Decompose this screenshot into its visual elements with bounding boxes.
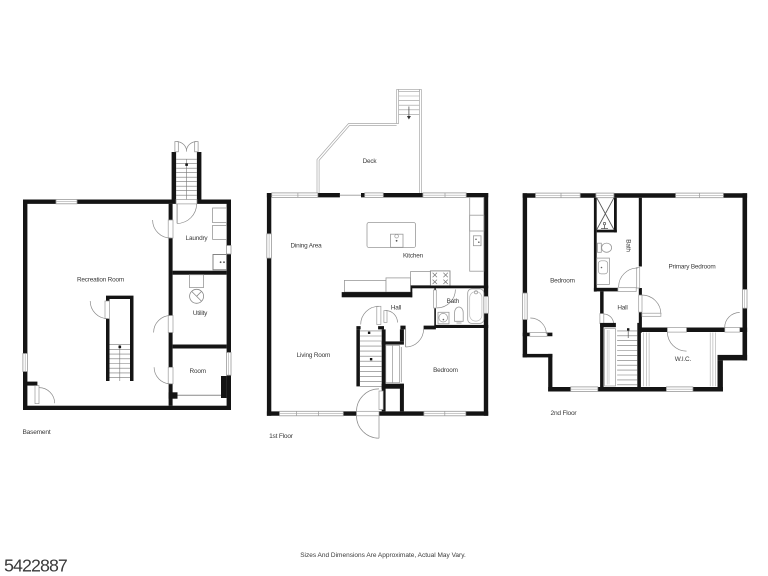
svg-text:Deck: Deck (363, 158, 378, 165)
svg-text:Dining Area: Dining Area (290, 242, 322, 249)
svg-text:Primary Bedroom: Primary Bedroom (668, 263, 715, 270)
svg-text:Hall: Hall (617, 305, 627, 312)
svg-text:Living Room: Living Room (297, 352, 331, 359)
svg-text:2nd Floor: 2nd Floor (551, 410, 578, 417)
svg-text:Basement: Basement (23, 429, 51, 436)
svg-text:W.I.C.: W.I.C. (675, 356, 692, 363)
svg-text:Sizes And Dimensions Are Appro: Sizes And Dimensions Are Approximate, Ac… (300, 552, 466, 559)
svg-text:Utility: Utility (193, 310, 208, 317)
svg-text:Bedroom: Bedroom (550, 278, 575, 285)
svg-text:1st Floor: 1st Floor (269, 433, 294, 440)
svg-text:Hall: Hall (391, 304, 401, 311)
svg-text:Recreation Room: Recreation Room (77, 276, 124, 283)
svg-text:Laundry: Laundry (186, 235, 209, 242)
svg-text:5422887: 5422887 (4, 556, 67, 576)
svg-text:Kitchen: Kitchen (403, 252, 424, 259)
svg-text:Bath: Bath (447, 298, 460, 305)
svg-text:Bath: Bath (624, 239, 631, 252)
svg-text:Bedroom: Bedroom (433, 367, 458, 374)
svg-text:Room: Room (190, 368, 206, 375)
